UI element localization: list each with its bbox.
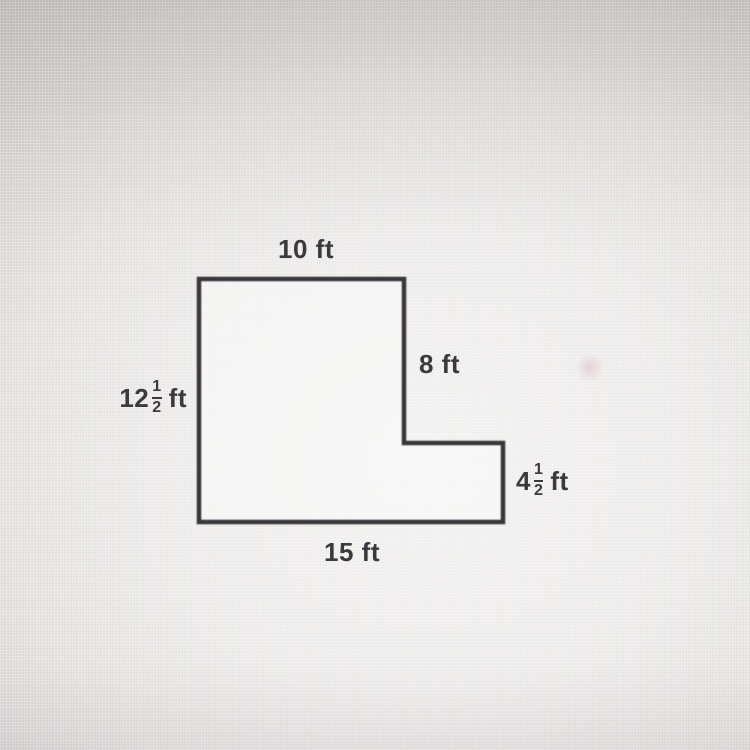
- dimension-label-right-upper: 8 ft: [419, 349, 460, 380]
- l-shape-outline: [199, 279, 503, 522]
- dimension-label-bottom: 15 ft: [324, 537, 380, 568]
- dimension-label-top: 10 ft: [278, 234, 334, 265]
- unit-label: ft: [169, 383, 187, 414]
- photo-smudge-artifact: [578, 356, 602, 382]
- fraction-numerator: 1: [534, 462, 543, 479]
- mixed-number-whole: 4: [516, 466, 531, 497]
- l-shape-figure: [0, 0, 750, 750]
- fraction-denominator: 2: [534, 483, 543, 500]
- fraction-denominator: 2: [152, 400, 161, 417]
- dimension-label-right-lower: 4 1 2 ft: [516, 452, 569, 510]
- fraction: 1 2: [534, 462, 543, 500]
- dimension-label-left: 12 1 2 ft: [119, 369, 187, 427]
- fraction: 1 2: [152, 379, 161, 417]
- screen-photo-background: 10 ft 8 ft 12 1 2 ft 4 1 2 ft 15 ft: [0, 0, 750, 750]
- fraction-numerator: 1: [152, 379, 161, 396]
- mixed-number-whole: 12: [119, 383, 149, 414]
- unit-label: ft: [550, 466, 568, 497]
